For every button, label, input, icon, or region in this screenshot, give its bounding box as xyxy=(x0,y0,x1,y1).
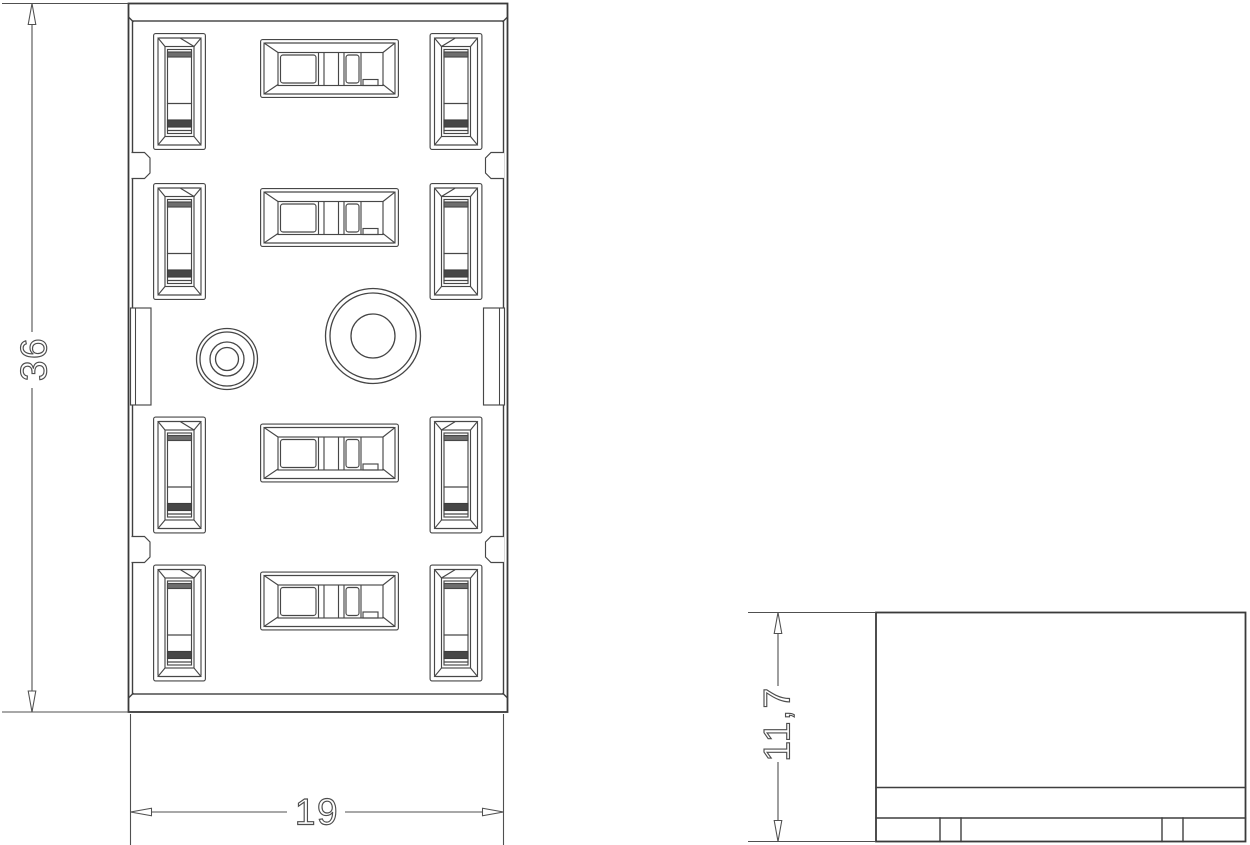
dimension-width-19: 19 xyxy=(131,714,504,845)
arrowhead-left xyxy=(131,808,152,816)
dim-label-11-7: 11,7 xyxy=(757,686,798,761)
dim-label-36: 36 xyxy=(14,337,55,381)
drawing-canvas: 36 19 11,7 xyxy=(0,0,1250,845)
vertical-slot xyxy=(154,417,206,533)
edge-notch xyxy=(486,153,505,179)
vertical-slot xyxy=(430,184,482,300)
vertical-slot xyxy=(154,184,206,300)
front-view xyxy=(129,4,508,713)
slot-column-right xyxy=(430,34,482,681)
arrowhead-up xyxy=(28,4,36,25)
guide-circle-large xyxy=(326,289,421,384)
technical-drawing: 36 19 11,7 xyxy=(0,0,1250,845)
guide-circle-small xyxy=(197,329,258,390)
vertical-slot xyxy=(154,34,206,150)
edge-relief-left xyxy=(131,308,152,405)
vertical-slot xyxy=(154,565,206,681)
dimension-height-36: 36 xyxy=(2,4,129,713)
edge-notch xyxy=(486,537,505,563)
edge-notch xyxy=(132,537,151,563)
arrowhead-down xyxy=(774,821,782,842)
vertical-slot xyxy=(430,417,482,533)
slot-column-left xyxy=(154,34,206,681)
arrowhead-down xyxy=(28,691,36,712)
vertical-slot xyxy=(430,34,482,150)
side-view-feet xyxy=(940,818,1183,842)
horizontal-slot xyxy=(261,572,399,630)
horizontal-slot xyxy=(261,424,399,482)
arrowhead-up xyxy=(774,613,782,634)
horizontal-slot xyxy=(261,189,399,247)
edge-notch xyxy=(132,153,151,179)
edge-relief-right xyxy=(484,308,505,405)
horizontal-slot xyxy=(261,40,399,98)
side-view-outline xyxy=(876,613,1246,842)
arrowhead-right xyxy=(483,808,504,816)
vertical-slot xyxy=(430,565,482,681)
dim-label-19: 19 xyxy=(295,792,339,833)
dimension-height-11-7: 11,7 xyxy=(748,613,876,842)
side-view xyxy=(876,613,1246,842)
